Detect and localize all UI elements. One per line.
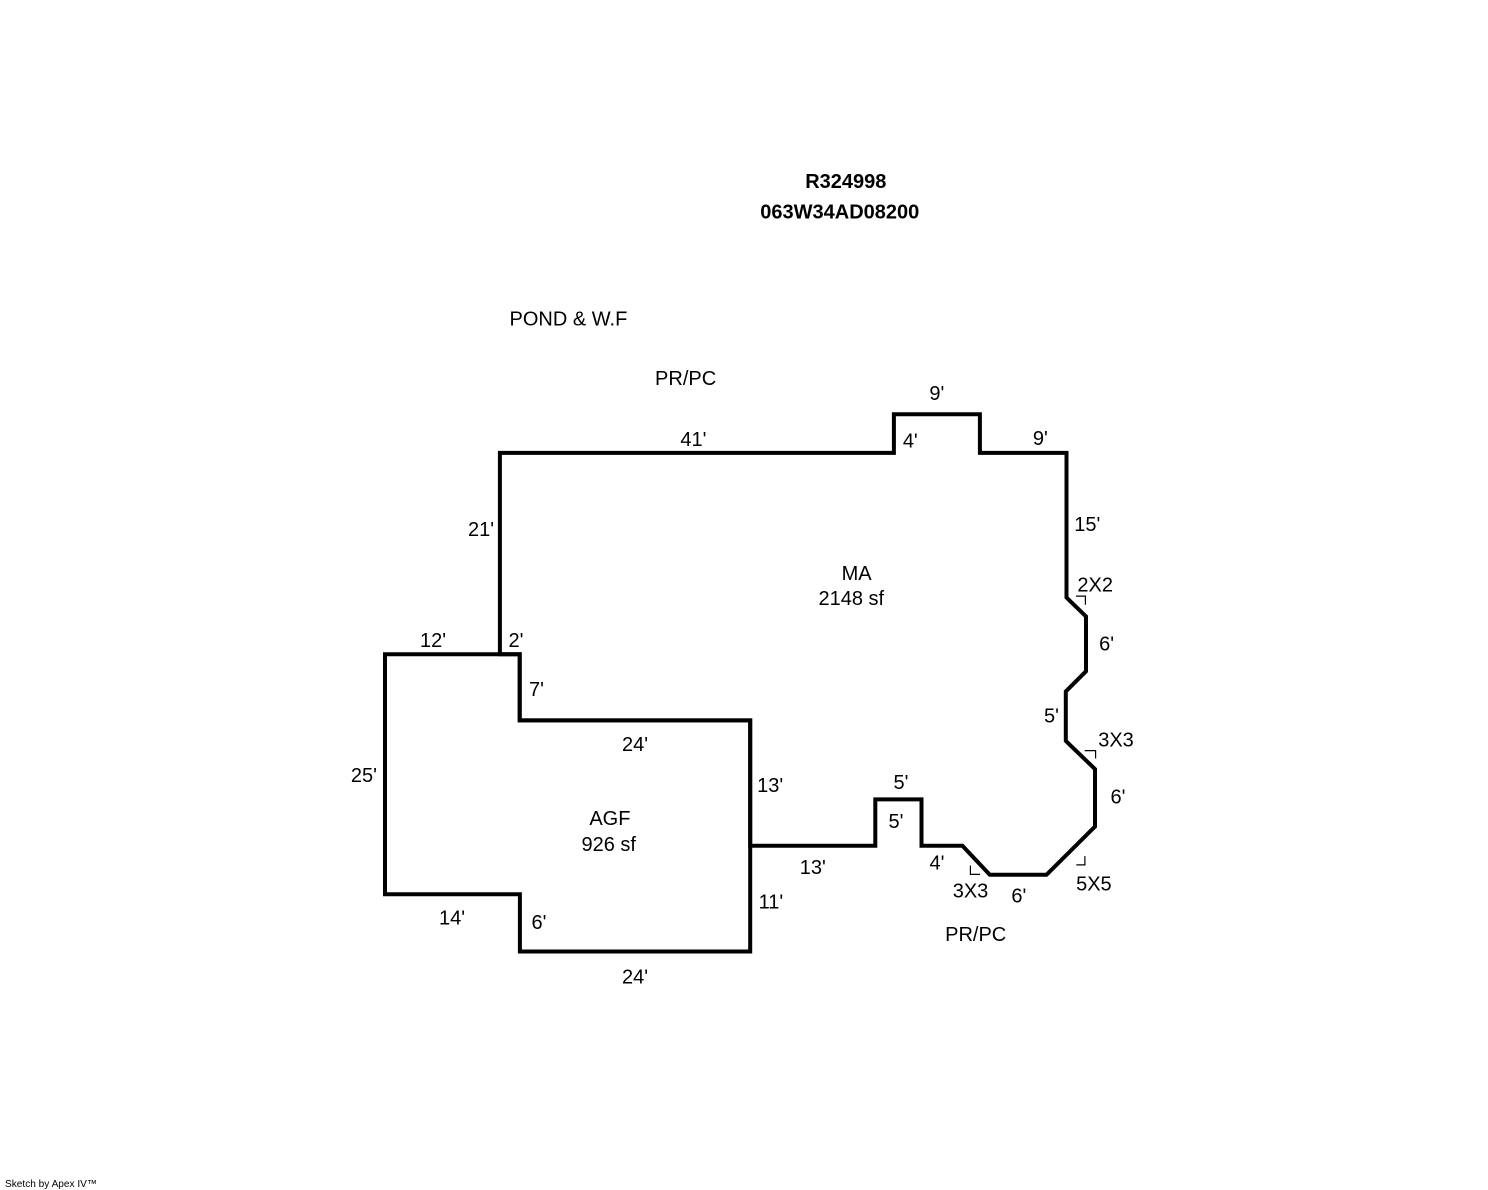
svg-text:MA: MA	[842, 563, 873, 585]
svg-text:POND & W.F: POND & W.F	[510, 309, 628, 331]
svg-text:6': 6'	[1111, 787, 1126, 809]
svg-text:12': 12'	[420, 630, 446, 652]
svg-text:2X2: 2X2	[1077, 575, 1113, 597]
svg-text:3X3: 3X3	[953, 880, 989, 902]
svg-text:2148 sf: 2148 sf	[818, 588, 884, 610]
svg-text:PR/PC: PR/PC	[945, 924, 1006, 946]
svg-text:063W34AD08200: 063W34AD08200	[760, 202, 919, 224]
svg-text:9': 9'	[1033, 428, 1048, 450]
svg-text:4': 4'	[930, 852, 945, 874]
svg-text:13': 13'	[757, 775, 783, 797]
svg-text:41': 41'	[680, 429, 706, 451]
svg-text:R324998: R324998	[805, 171, 886, 193]
svg-text:5': 5'	[889, 811, 904, 833]
svg-text:Sketch by Apex IV™: Sketch by Apex IV™	[5, 1179, 97, 1190]
svg-text:2': 2'	[509, 630, 524, 652]
svg-text:7': 7'	[529, 679, 544, 701]
svg-text:4': 4'	[903, 430, 918, 452]
svg-text:AGF: AGF	[589, 808, 630, 830]
svg-text:5X5: 5X5	[1076, 874, 1112, 896]
svg-text:6': 6'	[1011, 886, 1026, 908]
svg-text:PR/PC: PR/PC	[655, 368, 716, 390]
svg-text:21': 21'	[468, 519, 494, 541]
svg-text:3X3: 3X3	[1098, 730, 1134, 752]
svg-text:5': 5'	[1044, 706, 1059, 728]
svg-text:14': 14'	[439, 908, 465, 930]
svg-text:6': 6'	[532, 912, 547, 934]
svg-text:24': 24'	[622, 734, 648, 756]
svg-text:15': 15'	[1074, 514, 1100, 536]
svg-text:926 sf: 926 sf	[581, 834, 636, 856]
svg-text:9': 9'	[929, 383, 944, 405]
svg-text:6': 6'	[1099, 634, 1114, 656]
svg-text:25': 25'	[351, 765, 377, 787]
svg-text:24': 24'	[622, 967, 648, 989]
svg-text:11': 11'	[759, 891, 784, 913]
svg-text:5': 5'	[894, 772, 909, 794]
svg-text:13': 13'	[800, 857, 826, 879]
